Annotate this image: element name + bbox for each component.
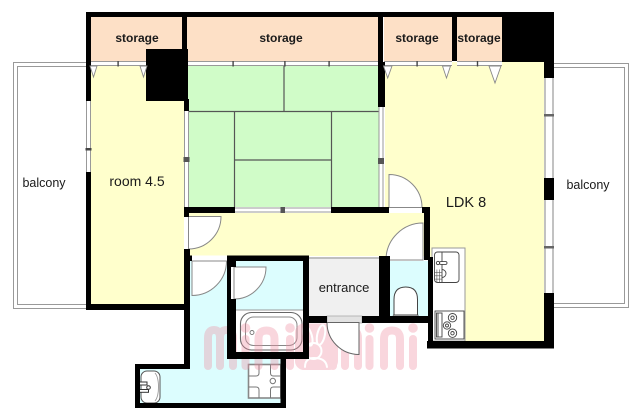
svg-text:balcony: balcony xyxy=(22,176,66,190)
svg-text:LDK 8: LDK 8 xyxy=(446,195,486,211)
svg-text:storage: storage xyxy=(259,31,303,45)
svg-text:entrance: entrance xyxy=(319,280,370,295)
svg-text:storage: storage xyxy=(457,31,501,45)
svg-text:storage: storage xyxy=(115,31,159,45)
svg-text:balcony: balcony xyxy=(566,178,610,192)
svg-text:room 4.5: room 4.5 xyxy=(109,173,164,189)
svg-text:storage: storage xyxy=(395,31,439,45)
